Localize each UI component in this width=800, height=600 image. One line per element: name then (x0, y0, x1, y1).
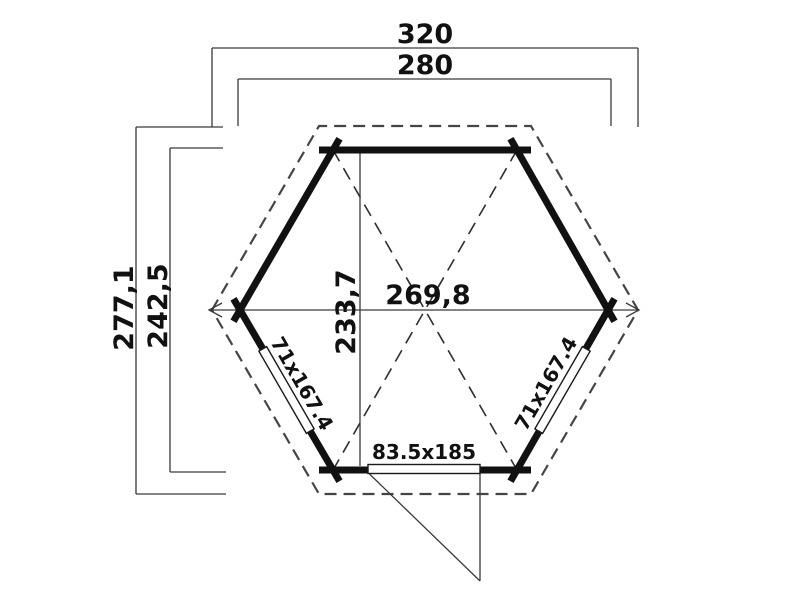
internal-width-label: 269,8 (385, 280, 470, 311)
door-swing-line (369, 474, 480, 582)
window-left: 71x167.4 (259, 332, 339, 434)
overall-depth-label: 277,1 (109, 265, 140, 350)
dimension-wall-width: 280 (238, 50, 611, 126)
floor-plan-drawing: 320 280 277,1 242,5 269,8 233,7 (0, 0, 800, 600)
door-frame (368, 465, 480, 474)
wall-lower-left-b (310, 431, 340, 481)
overall-width-label: 320 (397, 19, 453, 50)
wall-width-label: 280 (397, 50, 453, 81)
dimension-internal-width: 269,8 (209, 280, 639, 317)
window-right: 71x167.4 (510, 332, 591, 434)
internal-depth-label: 233,7 (331, 269, 362, 354)
wall-upper-right (511, 139, 615, 322)
floor-plan-canvas: 320 280 277,1 242,5 269,8 233,7 (0, 0, 800, 600)
wall-upper-left (234, 139, 340, 321)
wall-lower-right-b (511, 431, 540, 481)
wall-depth-label: 242,5 (143, 263, 174, 348)
door: 83.5x185 (368, 440, 480, 581)
wall-lower-right-a (586, 299, 615, 350)
door-label: 83.5x185 (372, 440, 476, 464)
wall-lower-left-a (234, 299, 264, 349)
